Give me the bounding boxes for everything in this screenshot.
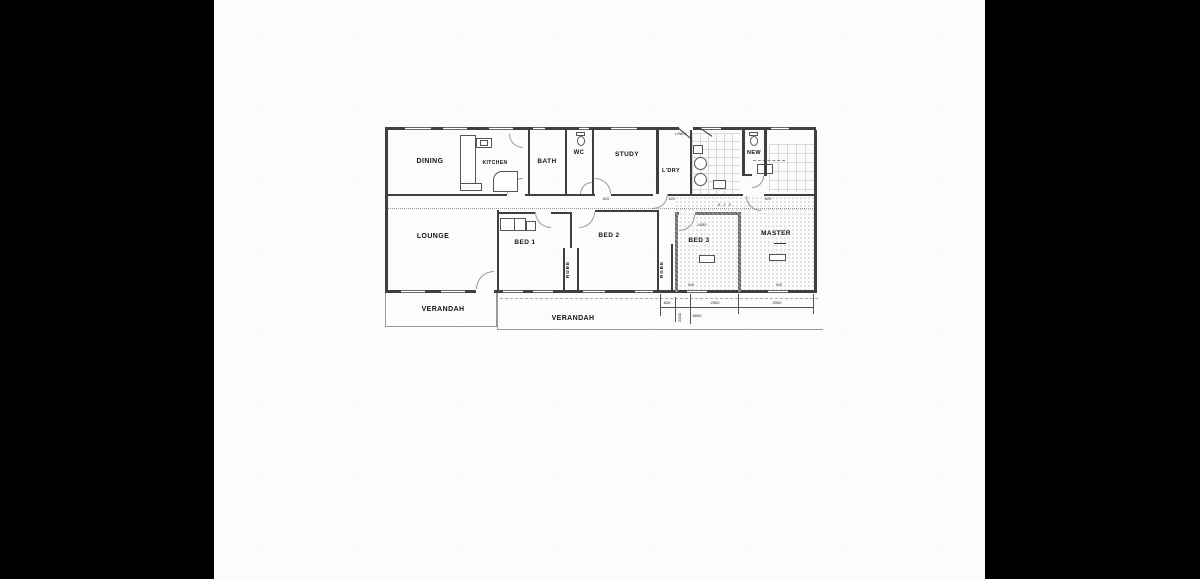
wall-lounge-bed1 (497, 210, 499, 292)
wall-bed1-top (497, 212, 535, 214)
window (503, 290, 523, 293)
wall-spine (525, 194, 595, 196)
wall-robe-b-right (671, 244, 673, 292)
door-tag: 820 (665, 197, 679, 201)
dim-tick (675, 297, 676, 322)
wall-bed2-right (657, 210, 659, 292)
wall-spine (668, 194, 743, 196)
kitchen-bench-right (493, 171, 518, 192)
master-fitting-icon (769, 254, 786, 261)
dim-tick (660, 294, 661, 316)
window-tag-w4: W4 (685, 283, 697, 287)
toilet-bowl-icon (577, 136, 585, 146)
wall-bed1-bed2 (570, 212, 572, 248)
door-arc-lounge-entry (476, 271, 494, 289)
wall-left (385, 127, 388, 293)
window (583, 290, 605, 293)
wall-right (814, 130, 817, 293)
window (611, 127, 637, 130)
room-label-robe-a: ROBE (566, 254, 575, 284)
right-black-bar (985, 0, 1200, 579)
room-label-dining: DINING (405, 158, 455, 165)
door-arc-new-wc (752, 176, 764, 188)
robe-shelf-divider (514, 218, 515, 231)
washer-icon (693, 145, 703, 154)
wall-newwc-bottom (742, 174, 752, 176)
room-label-robe-b: ROBE (660, 254, 669, 284)
wall-robe-a-right (577, 248, 579, 292)
door-tag: 820 (761, 197, 775, 201)
dim-seg3: 2000 (763, 301, 791, 305)
room-label-master: MASTER (753, 231, 799, 238)
screenshot-root: { "colors": { "bar": "#000000", "paper":… (0, 0, 1200, 579)
wall-ldry-laundry (690, 130, 692, 194)
master-dash (774, 243, 786, 244)
kitchen-bench-return (460, 183, 482, 191)
window-tag-w2: W2 (773, 283, 785, 287)
linen-annotation: LINEN (671, 132, 691, 136)
room-label-bed3: BED 3 (682, 238, 716, 245)
room-label-lounge: LOUNGE (408, 233, 458, 240)
dim-tick (813, 294, 814, 314)
wall-bed2-top (595, 210, 657, 212)
kitchen-bench (460, 135, 476, 185)
room-label-bath: BATH (532, 159, 562, 166)
window (489, 127, 513, 130)
wall-bed1-top (551, 212, 572, 214)
verandah-dashed-line (500, 298, 818, 299)
door-arc-bed2 (579, 212, 595, 228)
window (687, 290, 707, 293)
laundry-appliance-icon (713, 180, 726, 189)
wall-bed3-top-new (675, 212, 679, 215)
room-label-ldry: L'DRY (657, 169, 685, 175)
window (579, 127, 589, 130)
room-label-verandah-left: VERANDAH (415, 306, 471, 313)
wall-wc-study (592, 130, 594, 194)
door-arc-study (595, 178, 611, 194)
window (768, 290, 788, 293)
wall-spine (764, 194, 815, 196)
dim-tick (738, 294, 739, 314)
window (443, 127, 467, 130)
bed3-fitting-icon (699, 255, 715, 263)
door-tag: 820 (599, 197, 613, 201)
window (533, 290, 553, 293)
window (533, 127, 545, 130)
ensuite-tile-grid (769, 144, 814, 192)
window (441, 290, 465, 293)
toilet-bowl-icon (750, 136, 758, 146)
room-label-bed1: BED 1 (509, 240, 541, 247)
floor-plan: DINING KITCHEN BATH WC STUDY L'DRY NEW L… (383, 124, 824, 334)
hall-dotted-line (388, 208, 815, 209)
room-label-bed2: BED 2 (590, 233, 628, 240)
room-label-new-wc: NEW (742, 151, 766, 157)
door-arc-wc (580, 182, 592, 194)
wall-kitchen-bath (528, 130, 530, 194)
bed3-dim-tag: 4050 (693, 223, 711, 227)
robe-shelf-icon (526, 221, 536, 231)
wall-bed3-top-new (695, 212, 741, 215)
wall-spine (387, 194, 507, 196)
window (401, 290, 425, 293)
wall-bath-wc (565, 130, 567, 194)
robe-shelf-icon (500, 218, 526, 231)
wall-study-ldry (656, 130, 659, 194)
dim-total: 8600 (683, 314, 711, 318)
room-label-verandah-bottom: VERANDAH (541, 315, 605, 322)
door-arc-bed1 (535, 212, 551, 228)
left-black-bar (0, 0, 214, 579)
dim-vert: 2000 (677, 306, 683, 322)
laundry-tub-icon (694, 173, 707, 186)
wall-bed3-left-new (675, 212, 678, 292)
dim-seg2: 2500 (701, 301, 729, 305)
dim-tick (690, 294, 691, 324)
wall-spine (611, 194, 653, 196)
window (635, 290, 653, 293)
sink-bowl-icon (480, 140, 488, 146)
wall-bed3-master-new (738, 212, 741, 292)
room-label-study: STUDY (607, 152, 647, 159)
room-label-kitchen: KITCHEN (475, 161, 515, 166)
window (771, 127, 789, 130)
fridge-door-arc (509, 134, 523, 148)
hall-tag: 820 (715, 203, 737, 207)
window (405, 127, 431, 130)
vanity-dashed-line (753, 160, 785, 161)
door-gap (476, 290, 494, 293)
dim-seg1: 820 (659, 301, 675, 305)
laundry-tub-icon (694, 157, 707, 170)
room-label-wc: WC (569, 150, 589, 156)
